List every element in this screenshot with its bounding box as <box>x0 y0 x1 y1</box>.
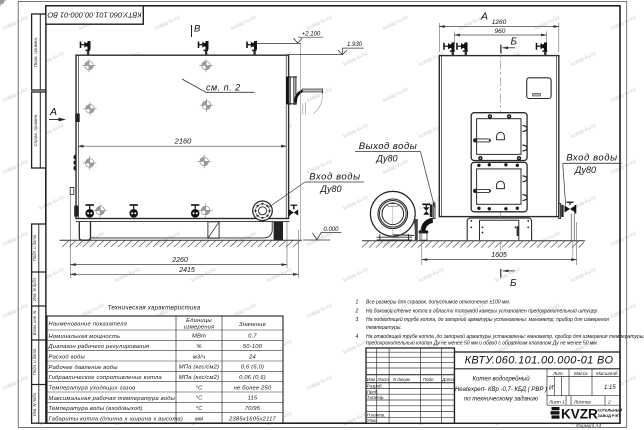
svg-text:не более 250: не более 250 <box>234 385 272 391</box>
svg-text:115: 115 <box>248 396 258 402</box>
svg-text:Справ. примен.: Справ. примен. <box>33 113 38 146</box>
svg-text:Heatexpert- КВр -0,7- КБД ( РВ: Heatexpert- КВр -0,7- КБД ( РВР ) <box>455 387 547 393</box>
svg-text:МВт: МВт <box>192 334 206 340</box>
svg-text:Масштаб: Масштаб <box>596 371 618 376</box>
svg-text:Б: Б <box>511 37 518 48</box>
svg-text:На отводящей трубе котла ,до з: На отводящей трубе котла ,до запорной ар… <box>366 333 644 340</box>
svg-text:Н.контр.: Н.контр. <box>367 412 386 417</box>
svg-text:50-100: 50-100 <box>243 344 263 350</box>
svg-text:И: И <box>549 385 554 392</box>
svg-text:Диапазон рабочего регулировани: Диапазон рабочего регулирования <box>48 344 150 350</box>
svg-text:2: 2 <box>355 308 359 314</box>
svg-text:Лист: Лист <box>377 377 390 382</box>
svg-text:Инв. N подл.: Инв. N подл. <box>32 392 37 416</box>
svg-text:%: % <box>196 344 201 350</box>
svg-text:ЗАВОД РЭП: ЗАВОД РЭП <box>598 414 621 418</box>
svg-text:МПа (кгс/см2): МПа (кгс/см2) <box>179 375 219 381</box>
svg-text:1605: 1605 <box>491 252 507 259</box>
svg-text:Выход воды: Выход воды <box>359 141 417 152</box>
svg-text:предохранительный клапан Ду не: предохранительный клапан Ду не менее 50 … <box>366 340 598 347</box>
svg-text:На подводящей трубе котла, д: На подводящей трубе котла, до запорной а… <box>366 316 609 323</box>
svg-text:Единицы: Единицы <box>186 318 212 324</box>
svg-text:°С: °С <box>196 406 204 412</box>
svg-text:Наименование показателя: Наименование показателя <box>49 322 128 328</box>
svg-text:Утв.: Утв. <box>367 418 377 423</box>
svg-text:Формат А3: Формат А3 <box>576 423 602 428</box>
svg-text:Подп. и дата: Подп. и дата <box>32 234 37 261</box>
svg-text:N докум.: N докум. <box>393 377 411 382</box>
svg-text:Ду80: Ду80 <box>574 165 596 175</box>
svg-text:Ду80: Ду80 <box>376 154 398 164</box>
svg-text:960: 960 <box>495 28 506 35</box>
svg-text:Рабочее давление воды: Рабочее давление воды <box>49 365 119 371</box>
svg-text:2160: 2160 <box>174 137 193 146</box>
svg-text:А: А <box>480 11 488 23</box>
svg-text:Разраб.: Разраб. <box>367 384 383 389</box>
svg-text:Вход воды: Вход воды <box>309 172 361 183</box>
svg-text:МПа (кгс/см2): МПа (кгс/см2) <box>179 365 219 371</box>
svg-text:Значение: Значение <box>239 322 267 328</box>
svg-text:2: 2 <box>607 399 611 404</box>
svg-text:Максимальная рабочая температу: Максимальная рабочая температура воды <box>49 396 176 402</box>
svg-text:0,7: 0,7 <box>248 334 257 340</box>
svg-text:2385х1605х2117: 2385х1605х2117 <box>228 416 276 422</box>
svg-text:Изм: Изм <box>367 377 375 382</box>
svg-text:На боковой стенке котла в обла: На боковой стенке котла в области топочн… <box>366 307 598 314</box>
svg-text:Гидравлическое сопротивление к: Гидравлическое сопротивление котла <box>49 375 163 381</box>
svg-text:Подп. и дата: Подп. и дата <box>32 348 37 375</box>
svg-text:по техническому заданию: по техническому заданию <box>464 396 539 402</box>
svg-text:м3/ч: м3/ч <box>193 354 206 360</box>
svg-text:1: 1 <box>356 300 359 306</box>
svg-text:Взам. инв. N: Взам. инв. N <box>32 310 37 335</box>
svg-text:1.930: 1.930 <box>347 42 363 48</box>
svg-text:1: 1 <box>562 399 565 404</box>
svg-text:Температура воды (вход/выход): Температура воды (вход/выход) <box>49 406 143 412</box>
svg-text:Листов: Листов <box>573 399 591 404</box>
svg-text:КВТУ.060.101.00.000-01 ВО: КВТУ.060.101.00.000-01 ВО <box>47 10 141 19</box>
svg-text:Ду80: Ду80 <box>320 184 342 194</box>
svg-text:мм: мм <box>195 416 203 422</box>
svg-text:Проб.: Проб. <box>367 389 379 394</box>
svg-text:Все размеры для справок, допус: Все размеры для справок, допустимое откл… <box>366 300 510 306</box>
svg-text:1:15: 1:15 <box>604 385 616 391</box>
svg-text:Техническая характеристика: Техническая характеристика <box>108 305 201 312</box>
svg-text:Расход воды: Расход воды <box>49 355 86 361</box>
svg-text:Номинальная мощность: Номинальная мощность <box>49 334 121 340</box>
svg-text:В: В <box>194 24 201 35</box>
svg-text:измерения: измерения <box>184 325 215 331</box>
svg-text:0.000: 0.000 <box>323 227 339 233</box>
svg-text:Подп.: Подп. <box>423 377 435 382</box>
svg-text:2260: 2260 <box>171 257 188 264</box>
svg-text:70/95: 70/95 <box>245 406 261 412</box>
svg-text:Котел водогрейный: Котел водогрейный <box>472 375 530 382</box>
svg-text:4: 4 <box>356 334 359 340</box>
svg-text:3: 3 <box>356 317 359 323</box>
svg-text:КОТЕЛЬНЫЙ: КОТЕЛЬНЫЙ <box>598 409 623 413</box>
svg-text:1260: 1260 <box>492 19 507 26</box>
svg-text:Перв. примен.: Перв. примен. <box>33 37 38 68</box>
svg-text:Масса: Масса <box>574 371 588 376</box>
svg-text:А: А <box>49 106 57 118</box>
svg-text:Т.контр.: Т.контр. <box>367 395 385 400</box>
svg-text:°С: °С <box>196 385 204 391</box>
svg-text:24: 24 <box>248 354 256 360</box>
svg-text:+2.100: +2.100 <box>302 32 321 38</box>
svg-text:температуры.: температуры. <box>366 325 402 331</box>
svg-text:см. п. 2: см. п. 2 <box>206 83 241 93</box>
svg-text:Лит.: Лит. <box>552 371 564 376</box>
svg-text:0,06 (0,6): 0,06 (0,6) <box>239 375 266 381</box>
svg-text:КВТУ.060.101.00.000-01 ВО: КВТУ.060.101.00.000-01 ВО <box>465 355 614 367</box>
svg-text:Дата: Дата <box>441 377 454 382</box>
svg-text:Б: Б <box>510 278 517 289</box>
svg-text:Вход воды: Вход воды <box>566 153 618 164</box>
svg-text:Лист: Лист <box>548 399 561 404</box>
svg-text:Инв. N дубл.: Инв. N дубл. <box>32 277 37 301</box>
svg-text:2415: 2415 <box>178 267 195 274</box>
svg-text:Температура уходящих газов: Температура уходящих газов <box>49 386 136 392</box>
svg-text:KVZR: KVZR <box>561 407 598 422</box>
svg-text:0,6 (6,0): 0,6 (6,0) <box>241 365 264 371</box>
svg-text:°С: °С <box>196 396 204 402</box>
svg-text:Габариты котла (длинна х ширин: Габариты котла (длинна х ширина х высота… <box>49 417 184 423</box>
